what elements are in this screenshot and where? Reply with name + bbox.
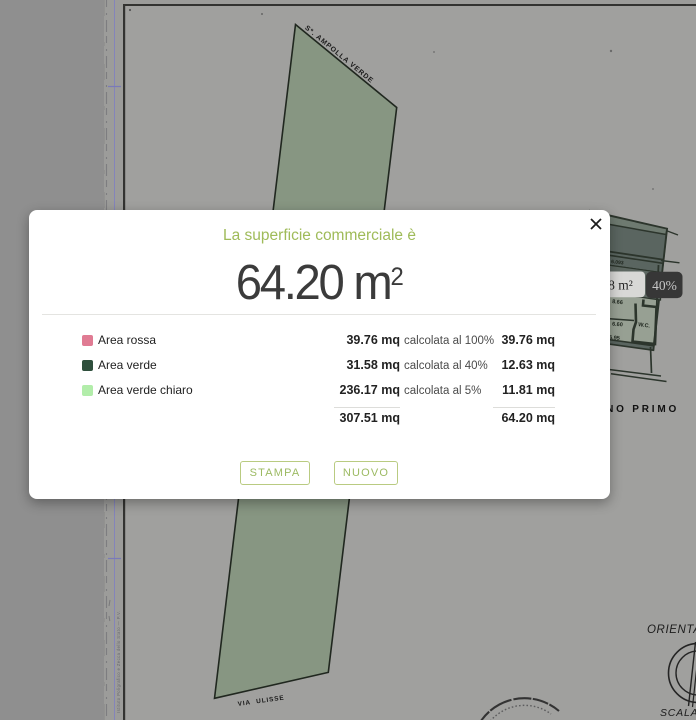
svg-text:40%: 40% [652,278,677,293]
svg-text:6.60: 6.60 [612,322,623,329]
svg-text:6.95: 6.95 [609,335,620,342]
svg-text:SCALA: SCALA [660,707,696,719]
svg-text:ORIENTAMENTO: ORIENTAMENTO [647,624,696,636]
svg-text:Istituto Poligrafico e Zecca d: Istituto Poligrafico e Zecca dello Stato… [116,611,121,713]
